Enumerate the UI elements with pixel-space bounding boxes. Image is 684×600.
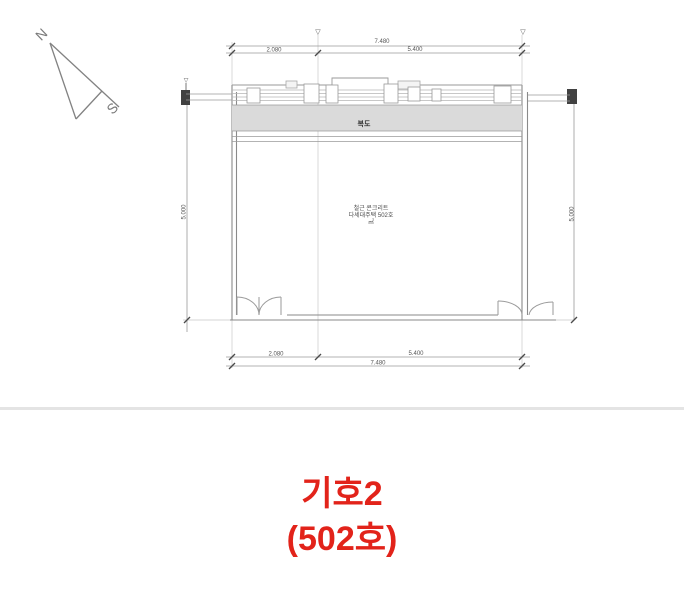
compass-south-label: S bbox=[103, 99, 121, 117]
dim-top-seg2: 5.400 bbox=[407, 47, 423, 53]
side-sill-lines bbox=[186, 94, 570, 101]
floor-plan-drawing: N S bbox=[0, 0, 684, 408]
dim-right: 5.000 bbox=[570, 206, 576, 222]
level-mark-icon: ▽ bbox=[184, 78, 189, 84]
dim-left: 5.000 bbox=[182, 204, 188, 220]
dim-top-seg1: 2.080 bbox=[266, 48, 282, 54]
right-dim-end-marker bbox=[567, 89, 577, 104]
unit-symbol-label: 기호2 bbox=[0, 472, 684, 517]
dim-top-total: 7.480 bbox=[374, 39, 390, 45]
window-lines bbox=[232, 90, 522, 101]
compass-north-label: N bbox=[32, 25, 50, 44]
dimension-labels: 7.480 2.080 5.400 2.080 5.400 7.480 5.00… bbox=[182, 39, 576, 367]
corridor-label: 복도 bbox=[358, 119, 371, 128]
room-label: 철근 콘크리트 다세대주택 502호 ㎡ bbox=[349, 204, 394, 226]
top-facade-outline bbox=[232, 78, 522, 85]
unit-caption: 기호2 (502호) bbox=[0, 472, 684, 562]
corridor-band bbox=[232, 105, 522, 131]
dim-bottom-total: 7.480 bbox=[370, 361, 386, 367]
facade-step bbox=[286, 81, 297, 88]
unit-number-label: (502호) bbox=[0, 517, 684, 562]
room-label-line1: 철근 콘크리트 bbox=[354, 204, 389, 212]
room-label-line2: 다세대주택 502호 bbox=[349, 211, 394, 219]
entry-doors bbox=[237, 297, 553, 315]
level-mark-icon: ▽ bbox=[315, 29, 321, 36]
scanned-floor-plan-page: N S bbox=[0, 0, 684, 600]
north-arrow-base bbox=[76, 91, 102, 119]
dim-bottom-seg2: 5.400 bbox=[408, 351, 424, 357]
room-label-line3: ㎡ bbox=[368, 218, 374, 226]
level-mark-icon: ▽ bbox=[520, 29, 526, 36]
section-divider bbox=[0, 407, 684, 410]
dim-bottom-seg1: 2.080 bbox=[268, 352, 284, 358]
left-dim-end-marker bbox=[181, 90, 190, 105]
